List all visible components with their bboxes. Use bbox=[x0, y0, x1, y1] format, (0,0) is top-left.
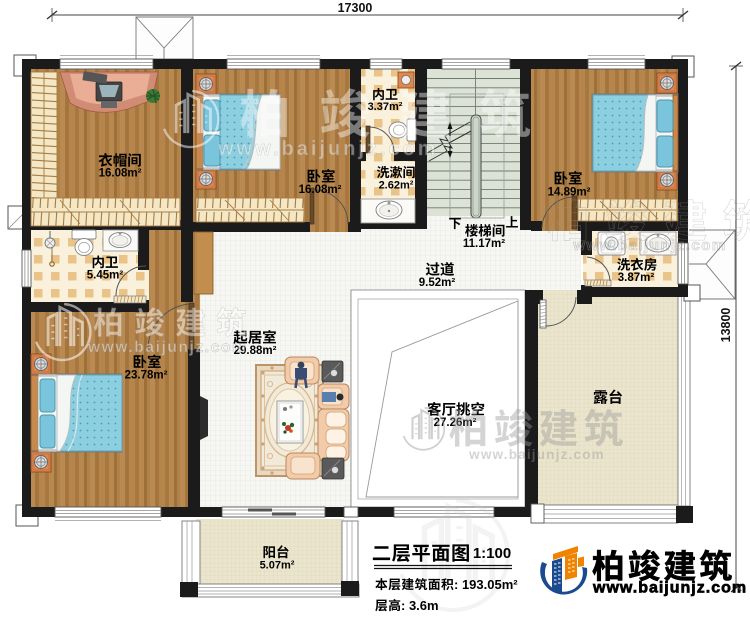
svg-text:www.baijunjz.com: www.baijunjz.com bbox=[87, 339, 247, 356]
svg-text:www.baijunjz.com: www.baijunjz.com bbox=[217, 138, 439, 160]
svg-text:16.08m²: 16.08m² bbox=[99, 168, 142, 180]
svg-text:1:100: 1:100 bbox=[473, 545, 511, 562]
svg-text:2.62m²: 2.62m² bbox=[379, 180, 414, 192]
svg-text:5.07m²: 5.07m² bbox=[260, 560, 295, 572]
svg-text:11.17m²: 11.17m² bbox=[463, 238, 505, 250]
svg-text:3.87m²: 3.87m² bbox=[618, 272, 655, 284]
svg-text:www.baijunjz.com: www.baijunjz.com bbox=[572, 237, 726, 254]
svg-text:23.78m²: 23.78m² bbox=[125, 370, 168, 382]
svg-text:: 193.05m²: : 193.05m² bbox=[454, 577, 518, 592]
svg-text:16.08m²: 16.08m² bbox=[299, 184, 342, 196]
svg-text:17300: 17300 bbox=[338, 1, 373, 15]
svg-text:5.45m²: 5.45m² bbox=[87, 270, 124, 282]
svg-text:3.37m²: 3.37m² bbox=[368, 101, 403, 113]
svg-text:9.52m²: 9.52m² bbox=[419, 277, 456, 289]
svg-text:www.baijunjz.com: www.baijunjz.com bbox=[468, 447, 605, 462]
svg-text:www.baijunjz.com: www.baijunjz.com bbox=[592, 580, 747, 597]
svg-text:13800: 13800 bbox=[719, 308, 733, 343]
svg-text:: 3.6m: : 3.6m bbox=[401, 598, 439, 612]
svg-text:14.89m²: 14.89m² bbox=[548, 187, 591, 199]
